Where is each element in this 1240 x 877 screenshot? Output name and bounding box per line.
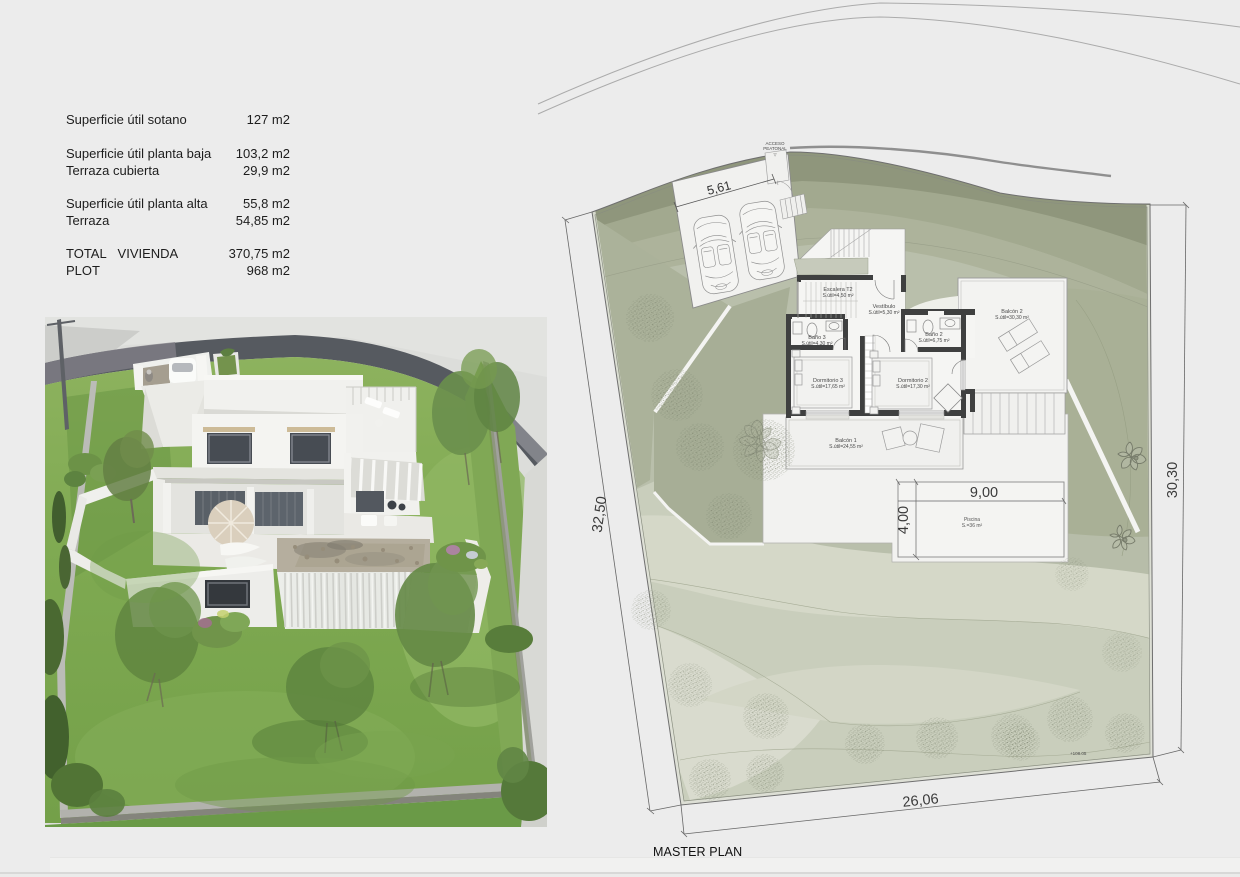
svg-text:PEATONAL: PEATONAL (763, 146, 787, 151)
svg-text:S.útil=30,30 m²: S.útil=30,30 m² (995, 315, 1029, 321)
svg-text:S.útil=17,65 m²: S.útil=17,65 m² (811, 384, 845, 390)
svg-text:S.útil=17,30 m²: S.útil=17,30 m² (896, 384, 930, 390)
svg-text:+108.05: +108.05 (1070, 751, 1087, 756)
svg-text:S.útil=4,50 m²: S.útil=4,50 m² (823, 293, 854, 299)
svg-text:S.útil=5,30 m²: S.útil=5,30 m² (869, 310, 900, 316)
svg-text:9,00: 9,00 (970, 485, 998, 501)
svg-text:S.útil=6,75 m²: S.útil=6,75 m² (919, 338, 950, 344)
svg-text:S.útil=24,55 m²: S.útil=24,55 m² (829, 444, 863, 450)
svg-text:S.útil=4,30 m²: S.útil=4,30 m² (802, 341, 833, 347)
svg-text:30,30: 30,30 (1165, 462, 1181, 498)
svg-text:26,06: 26,06 (902, 791, 940, 811)
svg-text:S.=36 m²: S.=36 m² (962, 523, 983, 529)
svg-text:4,00: 4,00 (896, 506, 912, 534)
svg-text:32,50: 32,50 (590, 495, 611, 533)
